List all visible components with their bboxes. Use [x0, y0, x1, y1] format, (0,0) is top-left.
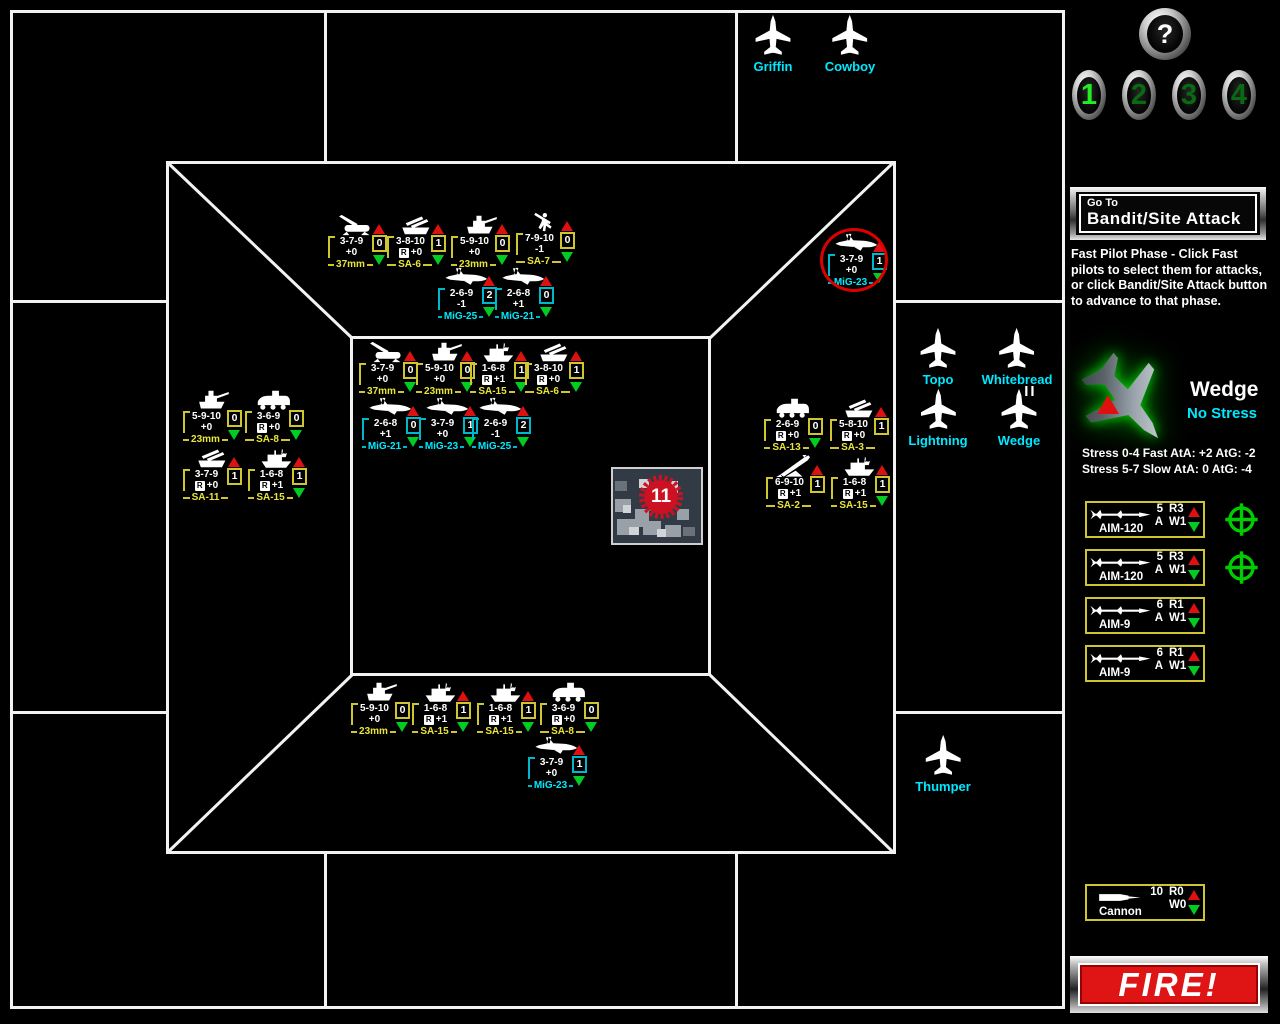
unit-counter[interactable]: 1-6-8 R+1 SA-15 1 — [248, 447, 304, 505]
unit-modifier: +1 — [790, 488, 801, 499]
pilot-aircraft[interactable]: Topo — [916, 326, 960, 387]
unit-stats: 2-6-8 +1 — [499, 288, 538, 310]
unit-counter[interactable]: 7-9-10 -1 SA-7 0 — [516, 211, 572, 269]
unit-modifier: +0 — [411, 247, 422, 258]
bracket-line — [516, 261, 525, 263]
unit-stats: 3-7-9 R+0 — [187, 469, 226, 491]
unit-value: 1 — [874, 418, 889, 435]
unit-type-label: MiG-25 — [476, 441, 513, 452]
unit-stats: 3-8-10 R+0 — [391, 236, 430, 258]
unit-modifier: +1 — [855, 488, 866, 499]
weapon-quantity: 10 — [1147, 886, 1163, 898]
selected-pilot-status: No Stress — [1187, 405, 1257, 422]
unit-type-label: SA-15 — [418, 726, 450, 737]
weapon-icon — [1090, 891, 1152, 904]
weapon-icon — [1090, 556, 1152, 569]
weapon-name-label: AIM-120 — [1099, 571, 1143, 583]
unit-counter[interactable]: 6-9-10 R+1 SA-2 1 — [766, 455, 822, 513]
stress-rule-slow: Stress 5-7 Slow AtA: 0 AtG: -4 — [1082, 462, 1252, 476]
unit-modifier: +1 — [380, 429, 391, 440]
increase-arrow-icon[interactable] — [432, 224, 444, 234]
increase-arrow-icon[interactable] — [517, 406, 529, 416]
pilot-select-button[interactable]: 2 — [1122, 70, 1156, 120]
weapon-down-arrow-icon[interactable] — [1188, 522, 1200, 532]
unit-counter[interactable]: 1-6-8 R+1 SA-15 1 — [412, 681, 468, 739]
decrease-arrow-icon[interactable] — [876, 496, 888, 506]
decrease-arrow-icon[interactable] — [457, 722, 469, 732]
unit-value: 1 — [572, 756, 587, 773]
unit-stats: 3-7-9 +0 — [423, 418, 462, 440]
weapon-up-arrow-icon[interactable] — [1188, 507, 1200, 517]
unit-stats: 2-6-9 -1 — [476, 418, 515, 440]
unit-modifier: +0 — [788, 430, 799, 441]
radar-indicator: R — [489, 715, 499, 725]
unit-stats: 1-6-8 R+1 — [481, 703, 520, 725]
radar-indicator: R — [257, 423, 267, 433]
increase-arrow-icon[interactable] — [228, 457, 240, 467]
decrease-arrow-icon[interactable] — [522, 722, 534, 732]
selected-pilot-name: Wedge — [1190, 378, 1258, 402]
decrease-arrow-icon[interactable] — [373, 255, 385, 265]
unit-modifier: +1 — [272, 480, 283, 491]
unit-value: 2 — [516, 417, 531, 434]
unit-stats: 2-6-9 R+0 — [768, 419, 807, 441]
increase-arrow-icon[interactable] — [873, 242, 885, 252]
unit-value: 0 — [584, 702, 599, 719]
unit-modifier: +0 — [269, 422, 280, 433]
unit-type-label: SA-15 — [837, 500, 869, 511]
weapon-quantity: 5 — [1147, 551, 1163, 563]
weapon-down-arrow-icon[interactable] — [1188, 905, 1200, 915]
unit-stats: 3-6-9 R+0 — [249, 411, 288, 433]
unit-counter[interactable]: 5-9-10 +0 23mm 0 — [351, 681, 407, 739]
unit-stats: 1-6-8 R+1 — [835, 477, 874, 499]
unit-counter[interactable]: 3-6-9 R+0 SA-8 0 — [540, 681, 596, 739]
pilot-button-number: 3 — [1181, 79, 1197, 112]
decrease-arrow-icon[interactable] — [570, 382, 582, 392]
unit-modifier: +0 — [846, 265, 857, 276]
radar-indicator: R — [778, 489, 788, 499]
unit-counter[interactable]: 2-6-8 +1 MiG-21 0 — [362, 396, 418, 454]
weapon-name-label: Cannon — [1099, 906, 1142, 918]
unit-stats: 2-6-9 -1 — [442, 288, 481, 310]
unit-type-label: SA-8 — [254, 434, 281, 445]
bracket-line — [766, 505, 775, 507]
pilot-aircraft[interactable]: Cowboy — [825, 13, 876, 74]
increase-arrow-icon[interactable] — [540, 276, 552, 286]
radar-indicator: R — [260, 481, 270, 491]
increase-arrow-icon[interactable] — [293, 457, 305, 467]
increase-arrow-icon[interactable] — [496, 224, 508, 234]
pilot-aircraft[interactable]: II Wedge — [997, 387, 1041, 448]
unit-counter[interactable]: 3-7-9 +0 37mm 0 — [328, 214, 384, 272]
pilot-aircraft[interactable]: Whitebread — [982, 326, 1053, 387]
weapon-quantity: 5 — [1147, 503, 1163, 515]
bracket-line — [387, 264, 396, 266]
weapon-weight: W1 — [1169, 612, 1186, 624]
unit-stats: 3-7-9 +0 — [332, 236, 371, 258]
unit-type-label: SA-3 — [839, 442, 866, 453]
weapon-quantity: 6 — [1147, 599, 1163, 611]
unit-value: 0 — [289, 410, 304, 427]
fire-button[interactable]: FIRE! — [1070, 956, 1268, 1013]
pilot-aircraft[interactable]: Lightning — [908, 387, 967, 448]
unit-type-label: SA-6 — [396, 259, 423, 270]
bracket-line — [245, 439, 254, 441]
unit-counter[interactable]: 1-6-8 R+1 SA-15 1 — [477, 681, 533, 739]
unit-type-label: MiG-23 — [532, 780, 569, 791]
radar-indicator: R — [195, 481, 205, 491]
weapon-weight: W0 — [1169, 899, 1186, 911]
unit-modifier: +0 — [434, 374, 445, 385]
unit-stats: 5-9-10 +0 — [420, 363, 459, 385]
unit-modifier: +1 — [513, 299, 524, 310]
decrease-arrow-icon[interactable] — [483, 307, 495, 317]
pilot-marker: II — [1024, 383, 1036, 400]
increase-arrow-icon[interactable] — [811, 465, 823, 475]
fighter-top-icon — [916, 387, 960, 433]
fighter-top-icon — [828, 13, 872, 59]
increase-arrow-icon[interactable] — [573, 745, 585, 755]
fighter-top-icon — [921, 733, 965, 779]
pilot-name-label: Topo — [916, 372, 960, 387]
unit-stats: 1-6-8 R+1 — [474, 363, 513, 385]
weapon-mode: A — [1147, 612, 1163, 624]
radar-indicator: R — [776, 431, 786, 441]
bracket-line — [830, 447, 839, 449]
unit-modifier: -1 — [491, 429, 500, 440]
unit-value: 0 — [227, 410, 242, 427]
unit-counter[interactable]: 2-6-9 R+0 SA-13 0 — [764, 397, 820, 455]
radar-indicator: R — [843, 489, 853, 499]
unit-type-label: SA-13 — [770, 442, 802, 453]
unit-type-label: 37mm — [334, 259, 367, 270]
decrease-arrow-icon[interactable] — [496, 255, 508, 265]
decrease-arrow-icon[interactable] — [573, 776, 585, 786]
increase-arrow-icon[interactable] — [561, 221, 573, 231]
unit-stats: 3-7-9 +0 — [363, 363, 402, 385]
goto-button-line1: Go To — [1087, 197, 1249, 209]
unit-counter[interactable]: 3-7-9 +0 37mm 0 — [359, 341, 415, 399]
decrease-arrow-icon[interactable] — [407, 437, 419, 447]
unit-type-label: SA-2 — [775, 500, 802, 511]
pilot-select-button[interactable]: 3 — [1172, 70, 1206, 120]
weapon-mode: A — [1147, 564, 1163, 576]
radar-indicator: R — [552, 715, 562, 725]
decrease-arrow-icon[interactable] — [228, 430, 240, 440]
pilot-name-label: Wedge — [997, 433, 1041, 448]
unit-counter[interactable]: 3-8-10 R+0 SA-6 1 — [525, 341, 581, 399]
unit-modifier: +0 — [437, 429, 448, 440]
weapon-mode: A — [1147, 660, 1163, 672]
target-select-icon[interactable] — [1223, 549, 1260, 586]
weapon-range: R1 — [1169, 647, 1184, 659]
unit-value: 0 — [808, 418, 823, 435]
unit-value: 0 — [495, 235, 510, 252]
unit-modifier: +0 — [201, 422, 212, 433]
unit-type-label: SA-6 — [534, 386, 561, 397]
radar-indicator: R — [842, 431, 852, 441]
decrease-arrow-icon[interactable] — [873, 273, 885, 283]
decrease-arrow-icon[interactable] — [396, 722, 408, 732]
unit-counter[interactable]: 1-6-8 R+1 SA-15 1 — [470, 341, 526, 399]
unit-counter[interactable]: 2-6-9 -1 MiG-25 2 — [438, 266, 494, 324]
fighter-top-icon — [751, 13, 795, 59]
increase-arrow-icon[interactable] — [570, 351, 582, 361]
bracket-line — [525, 391, 534, 393]
pilot-name-label: Lightning — [908, 433, 967, 448]
unit-counter[interactable]: 3-7-9 +0 MiG-23 1 — [828, 232, 884, 290]
pilot-select-button[interactable]: 1 — [1072, 70, 1106, 120]
pilot-name-label: Thumper — [915, 779, 971, 794]
pilot-button-number: 2 — [1131, 79, 1147, 112]
unit-counter[interactable]: 2-6-9 -1 MiG-25 2 — [472, 396, 528, 454]
decrease-arrow-icon[interactable] — [809, 438, 821, 448]
unit-stats: 1-6-8 R+1 — [252, 469, 291, 491]
goto-bandit-site-attack-button[interactable]: Go To Bandit/Site Attack — [1070, 187, 1266, 240]
unit-stats: 3-7-9 +0 — [832, 254, 871, 276]
bracket-line — [183, 497, 190, 499]
increase-arrow-icon[interactable] — [522, 691, 534, 701]
unit-type-label: 23mm — [189, 434, 222, 445]
unit-type-label: SA-11 — [190, 492, 222, 503]
increase-arrow-icon[interactable] — [483, 276, 495, 286]
unit-value: 0 — [395, 702, 410, 719]
weapon-range: R3 — [1169, 503, 1184, 515]
increase-arrow-icon[interactable] — [404, 351, 416, 361]
weapon-card[interactable]: 5 R3 A W1 AIM-120 — [1085, 549, 1205, 586]
pilot-button-number: 1 — [1081, 79, 1097, 112]
unit-stats: 2-6-8 +1 — [366, 418, 405, 440]
pilot-name-label: Griffin — [751, 59, 795, 74]
weapon-up-arrow-icon[interactable] — [1188, 651, 1200, 661]
weapon-card[interactable]: 6 R1 A W1 AIM-9 — [1085, 597, 1205, 634]
unit-counter[interactable]: 3-7-9 +0 MiG-23 1 — [419, 396, 475, 454]
weapon-up-arrow-icon[interactable] — [1188, 890, 1200, 900]
weapon-down-arrow-icon[interactable] — [1188, 618, 1200, 628]
target-photo[interactable]: 11 — [611, 467, 703, 545]
weapon-range: R1 — [1169, 599, 1184, 611]
phase-instructions: Fast Pilot Phase - Click Fast pilots to … — [1071, 247, 1271, 309]
weapon-name-label: AIM-9 — [1099, 667, 1130, 679]
unit-value: 0 — [372, 235, 387, 252]
help-button[interactable]: ? — [1139, 8, 1191, 60]
unit-stats: 6-9-10 R+1 — [770, 477, 809, 499]
unit-stats: 5-9-10 +0 — [355, 703, 394, 725]
unit-value: 0 — [560, 232, 575, 249]
unit-modifier: +0 — [346, 247, 357, 258]
unit-stats: 3-6-9 R+0 — [544, 703, 583, 725]
weapon-icon — [1090, 604, 1152, 617]
unit-value: 0 — [539, 287, 554, 304]
decrease-arrow-icon[interactable] — [561, 252, 573, 262]
unit-value: 1 — [521, 702, 536, 719]
fighter-top-icon — [916, 326, 960, 372]
weapon-down-arrow-icon[interactable] — [1188, 666, 1200, 676]
unit-counter[interactable]: 3-7-9 R+0 SA-11 1 — [183, 447, 239, 505]
stress-rule-fast: Stress 0-4 Fast AtA: +2 AtG: -2 — [1082, 446, 1256, 460]
increase-arrow-icon[interactable] — [876, 465, 888, 475]
unit-type-label: SA-15 — [254, 492, 286, 503]
unit-counter[interactable]: 5-8-10 R+0 SA-3 1 — [830, 397, 886, 455]
decrease-arrow-icon[interactable] — [432, 255, 444, 265]
unit-value: 1 — [875, 476, 890, 493]
unit-modifier: +1 — [501, 714, 512, 725]
unit-modifier: +0 — [369, 714, 380, 725]
weapon-quantity: 6 — [1147, 647, 1163, 659]
weapon-range: R3 — [1169, 551, 1184, 563]
weapon-mode: A — [1147, 516, 1163, 528]
unit-counter[interactable]: 5-9-10 +0 23mm 0 — [183, 389, 239, 447]
pilot-name-label: Whitebread — [982, 372, 1053, 387]
selected-pilot-aircraft-image — [1072, 348, 1180, 452]
unit-type-label: SA-15 — [483, 726, 515, 737]
weapon-down-arrow-icon[interactable] — [1188, 570, 1200, 580]
unit-value: 1 — [569, 362, 584, 379]
decrease-arrow-icon[interactable] — [290, 430, 302, 440]
weapon-card[interactable]: 5 R3 A W1 AIM-120 — [1085, 501, 1205, 538]
unit-type-label: 23mm — [357, 726, 390, 737]
weapon-name-label: AIM-120 — [1099, 523, 1143, 535]
unit-value: 1 — [431, 235, 446, 252]
unit-modifier: +0 — [854, 430, 865, 441]
unit-modifier: +1 — [494, 374, 505, 385]
weapon-name-label: AIM-9 — [1099, 619, 1130, 631]
unit-modifier: +0 — [377, 374, 388, 385]
target-select-icon[interactable] — [1223, 501, 1260, 538]
unit-stats: 7-9-10 -1 — [520, 233, 559, 255]
weapon-icon — [1090, 508, 1152, 521]
unit-value: 1 — [292, 468, 307, 485]
unit-type-label: MiG-25 — [442, 311, 479, 322]
unit-stats: 1-6-8 R+1 — [416, 703, 455, 725]
pilot-select-button[interactable]: 4 — [1222, 70, 1256, 120]
fire-button-label: FIRE! — [1118, 966, 1219, 1004]
unit-modifier: +0 — [549, 374, 560, 385]
radar-indicator: R — [399, 248, 409, 258]
unit-stats: 3-8-10 R+0 — [529, 363, 568, 385]
unit-counter[interactable]: 5-9-10 +0 23mm 0 — [451, 214, 507, 272]
unit-stats: 5-8-10 R+0 — [834, 419, 873, 441]
unit-counter[interactable]: 1-6-8 R+1 SA-15 1 — [831, 455, 887, 513]
weapon-weight: W1 — [1169, 660, 1186, 672]
decrease-arrow-icon[interactable] — [540, 307, 552, 317]
bracket-line — [540, 731, 549, 733]
unit-modifier: +0 — [207, 480, 218, 491]
unit-type-label: MiG-23 — [832, 277, 869, 288]
unit-modifier: +0 — [469, 247, 480, 258]
unit-stats: 5-9-10 +0 — [455, 236, 494, 258]
goto-button-line2: Bandit/Site Attack — [1087, 209, 1249, 228]
unit-type-label: MiG-21 — [366, 441, 403, 452]
pilot-aircraft[interactable]: Griffin — [751, 13, 795, 74]
stress-marker-icon — [1097, 395, 1119, 414]
unit-modifier: -1 — [535, 244, 544, 255]
unit-counter[interactable]: 3-7-9 +0 MiG-23 1 — [528, 735, 584, 793]
weapon-range: R0 — [1169, 886, 1184, 898]
unit-counter[interactable]: 2-6-8 +1 MiG-21 0 — [495, 266, 551, 324]
increase-arrow-icon[interactable] — [407, 406, 419, 416]
weapon-icon — [1090, 652, 1152, 665]
decrease-arrow-icon[interactable] — [293, 488, 305, 498]
unit-type-label: MiG-23 — [423, 441, 460, 452]
radar-indicator: R — [537, 375, 547, 385]
unit-modifier: +0 — [546, 768, 557, 779]
unit-modifier: -1 — [457, 299, 466, 310]
weapon-weight: W1 — [1169, 516, 1186, 528]
game-stage: 11 3-7-9 +0 37mm 0 3-8-10 — [0, 0, 1280, 1024]
unit-stats: 5-9-10 +0 — [187, 411, 226, 433]
decrease-arrow-icon[interactable] — [517, 437, 529, 447]
weapon-up-arrow-icon[interactable] — [1188, 603, 1200, 613]
unit-value: 1 — [456, 702, 471, 719]
unit-modifier: +0 — [564, 714, 575, 725]
unit-value: 1 — [810, 476, 825, 493]
increase-arrow-icon[interactable] — [373, 224, 385, 234]
fighter-top-icon — [995, 326, 1039, 372]
decrease-arrow-icon[interactable] — [404, 382, 416, 392]
pilot-aircraft[interactable]: Thumper — [915, 733, 971, 794]
unit-stats: 3-7-9 +0 — [532, 757, 571, 779]
unit-counter[interactable]: 3-8-10 R+0 SA-6 1 — [387, 214, 443, 272]
radar-indicator: R — [424, 715, 434, 725]
radar-indicator: R — [482, 375, 492, 385]
decrease-arrow-icon[interactable] — [585, 722, 597, 732]
weapon-card[interactable]: 10 R0 W0 Cannon — [1085, 884, 1205, 921]
unit-type-label: MiG-21 — [499, 311, 536, 322]
unit-value: 1 — [227, 468, 242, 485]
help-question-mark: ? — [1157, 19, 1174, 50]
weapon-up-arrow-icon[interactable] — [1188, 555, 1200, 565]
increase-arrow-icon[interactable] — [875, 407, 887, 417]
pilot-name-label: Cowboy — [825, 59, 876, 74]
weapon-weight: W1 — [1169, 564, 1186, 576]
weapon-card[interactable]: 6 R1 A W1 AIM-9 — [1085, 645, 1205, 682]
pilot-button-number: 4 — [1231, 79, 1247, 112]
increase-arrow-icon[interactable] — [457, 691, 469, 701]
unit-counter[interactable]: 3-6-9 R+0 SA-8 0 — [245, 389, 301, 447]
unit-modifier: +1 — [436, 714, 447, 725]
target-number: 11 — [641, 486, 681, 508]
unit-counter[interactable]: 5-9-10 +0 23mm 0 — [416, 341, 472, 399]
unit-value: 1 — [872, 253, 887, 270]
